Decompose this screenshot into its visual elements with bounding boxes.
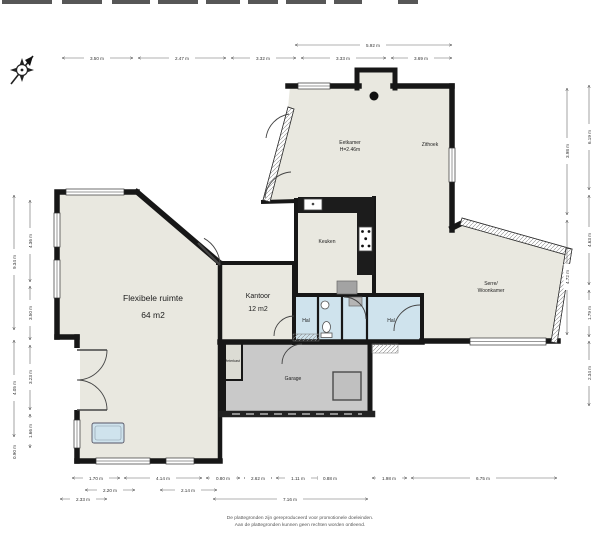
dim-bottom1-0: 1.70 m — [89, 476, 103, 481]
dim-bottom1-3: 2.62 m — [251, 476, 265, 481]
dim-left-outer-2: 0.90 m — [12, 445, 17, 459]
dim-top-2: 3.32 m — [256, 56, 270, 61]
dim-left-inner-3: 1.66 m — [28, 424, 33, 438]
room-label-flexibele: Flexibele ruimte — [123, 293, 183, 303]
dim-right-inner-1: 4.72 m — [565, 270, 570, 284]
room-label-keuken: Keuken — [319, 239, 336, 245]
room-floors — [57, 86, 571, 461]
dim-bottom1-5: 0.88 m — [323, 476, 337, 481]
chimney-block — [337, 281, 357, 294]
room-label-kantoor: Kantoor — [246, 293, 271, 300]
room-label-eetkamer: Eetkamer — [339, 140, 361, 146]
dim-left-inner-2: 3.23 m — [28, 370, 33, 384]
room-label-garage: Garage — [285, 376, 302, 382]
dim-bottom2-1: 2.14 m — [181, 488, 195, 493]
dim-bottom1-6: 1.98 m — [382, 476, 396, 481]
chimney-column — [370, 92, 379, 101]
dim-top-span: 5.92 m — [366, 43, 380, 48]
dim-right-outer-0: 6.19 m — [587, 130, 592, 144]
doormat — [293, 334, 319, 341]
washbasin-icon — [321, 301, 329, 309]
dim-left-outer-1: 4.05 m — [12, 381, 17, 395]
footer-disclaimer-line1: De plattegronden zijn gereproduceerd voo… — [227, 515, 373, 521]
floor-plan-canvas: Flexibele ruimte 64 m2 Kantoor 12 m2 Eet… — [0, 0, 600, 545]
dim-bottom1-1: 4.14 m — [156, 476, 170, 481]
dim-bottom1-7: 6.75 m — [476, 476, 490, 481]
stove-icon — [359, 227, 372, 251]
dim-top-0: 3.50 m — [90, 56, 104, 61]
top-edge-artifact — [2, 0, 418, 4]
dim-right-outer-1: 4.63 m — [587, 233, 592, 247]
dim-left-inner-1: 3.50 m — [28, 306, 33, 320]
floor-plan-page: Flexibele ruimte 64 m2 Kantoor 12 m2 Eet… — [0, 0, 600, 545]
room-label-serre-2: Woonkamer — [478, 288, 505, 294]
room-label-serre-1: Serre/ — [484, 281, 498, 287]
compass-icon — [10, 56, 34, 84]
dim-left-outer-0: 9.34 m — [12, 255, 17, 269]
dim-top-3: 3.33 m — [336, 56, 350, 61]
room-height-eetkamer: H=2.46m — [340, 147, 360, 153]
dim-bottom1-2: 0.80 m — [216, 476, 230, 481]
dim-right-outer-3: 2.34 m — [587, 366, 592, 380]
room-label-hal-left: Hal — [302, 318, 310, 324]
dim-bottom1-4: 1.11 m — [291, 476, 305, 481]
room-area-kantoor: 12 m2 — [248, 306, 268, 313]
dim-top-1: 2.47 m — [175, 56, 189, 61]
room-label-hal-right: Hal — [387, 318, 395, 324]
dim-left-inner-0: 4.36 m — [28, 234, 33, 248]
bath-fixture — [92, 423, 124, 443]
dim-bottom3-0: 2.33 m — [76, 497, 90, 502]
room-label-meterkast: Meterkast — [224, 359, 240, 363]
footer-disclaimer-line2: Aan de plattegronden kunnen geen rechten… — [235, 522, 365, 528]
garage-object — [333, 372, 361, 400]
room-label-zithoek: Zithoek — [422, 142, 439, 148]
dim-right-outer-2: 1.79 m — [587, 306, 592, 320]
room-area-flexibele: 64 m2 — [141, 310, 165, 320]
doormat — [372, 344, 398, 353]
dim-bottom3-1: 7.16 m — [283, 497, 297, 502]
dim-top-4: 3.69 m — [414, 56, 428, 61]
dim-right-inner-0: 3.98 m — [565, 144, 570, 158]
dim-bottom2-0: 2.20 m — [103, 488, 117, 493]
